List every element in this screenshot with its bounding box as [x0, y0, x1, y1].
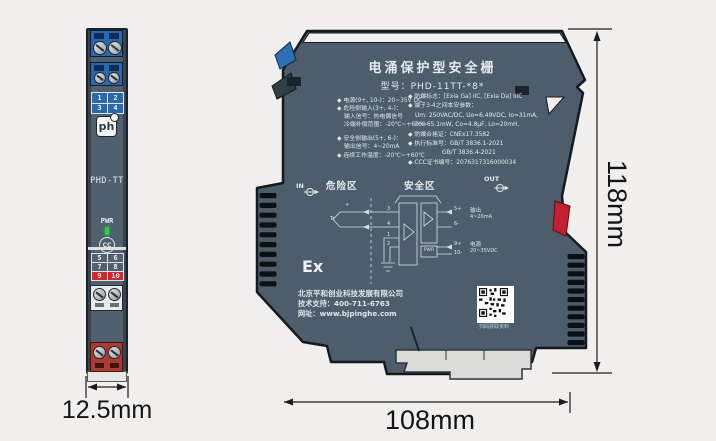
top-cap: [303, 33, 566, 43]
terminal-block-top-2: [90, 62, 123, 86]
spec-line: ◆ 防爆合格证：CNEx17.3582: [408, 131, 538, 140]
product-title: 电涌保护型安全栅: [340, 57, 525, 76]
terminal-screw: [93, 288, 106, 301]
product-dimension-drawing: { "left_module": { "model": "PHD-TT", "p…: [0, 0, 716, 441]
output-value: 4~20mA: [470, 214, 492, 220]
qr-code: [477, 286, 514, 323]
spec-line: ◆ 防爆标志：[Exia Ga] IIC, [Exia Da] IIIC: [408, 93, 538, 102]
spec-line: ◆ CCC证书编号：2076317316000034: [408, 159, 538, 168]
power-label: 电源: [470, 240, 481, 248]
thermocouple-label: Tc: [330, 216, 335, 222]
label-strip: [88, 247, 126, 250]
support-phone: 技术支持：400-711-6763: [298, 299, 390, 309]
terminal-number: 1: [92, 93, 107, 103]
terminal-block-top-1: [90, 30, 123, 57]
terminal-number: 10: [108, 272, 123, 280]
spec-line: ◆ 执行标准号：GB/T 3836.1-2021: [408, 140, 538, 149]
brand-logo: ph: [96, 116, 117, 137]
right-vent-grille: [568, 254, 585, 345]
terminal-number-grid-bottom: 5 6 7 8 9 10: [91, 253, 124, 281]
in-label: IN: [296, 182, 304, 190]
pwr-box-label: PWR: [421, 248, 437, 253]
spec-line: Po=65.1mW, Co=4.8μF, Lo=20mH,: [408, 121, 538, 130]
terminal-number: 7: [92, 263, 107, 271]
terminal-2-label: 2: [387, 241, 390, 247]
terminal-4-label: 4: [387, 221, 390, 227]
terminal-number: 5: [92, 254, 107, 262]
spec-line: GB/T 3836.4-2021: [408, 149, 538, 158]
qr-code-pattern: [479, 288, 508, 317]
side-height-dimension: 118mm: [601, 160, 632, 248]
ccc-certification-icon: CC: [99, 237, 115, 253]
terminal-10-label: 10-: [454, 250, 462, 256]
terminal-5-label: 5+: [454, 206, 461, 212]
terminal-9-label: 9+: [454, 241, 461, 247]
terminal-number: 3: [92, 104, 107, 114]
power-led: [105, 227, 109, 235]
safe-zone-label: 安全区: [404, 178, 436, 192]
terminal-screw: [108, 41, 122, 55]
terminal-screw: [108, 346, 121, 359]
brand-logo-text: ph: [99, 120, 115, 133]
terminal-block-bottom: [90, 342, 123, 372]
terminal-screw: [108, 72, 120, 84]
company-name: 北京平和创业科技发展有限公司: [298, 288, 403, 299]
power-value: 20~35VDC: [470, 248, 498, 254]
spec-line: Um: 250VAC/DC, Uo=6.49VDC, Io=31mA,: [408, 112, 538, 121]
registered-mark-icon: [110, 113, 119, 122]
product-model-line: 型号：PHD-11TT-*8*: [340, 79, 525, 92]
front-view-module: 1 2 3 4 ph PHD-TT PWR CC 5 6 7 8 9 10: [86, 28, 128, 382]
terminal-block-middle: [90, 285, 123, 311]
terminal-number: 4: [108, 104, 123, 114]
terminal-6-label: 6-: [454, 221, 459, 227]
terminal-screw: [93, 346, 106, 359]
terminal-screw: [93, 41, 107, 55]
terminal-screw: [108, 288, 121, 301]
red-wedge: [553, 201, 570, 236]
circuit-plus-label: +: [345, 202, 349, 208]
spec-list-right: ◆ 防爆标志：[Exia Ga] IIC, [Exia Da] IIIC ◆ 端…: [408, 93, 538, 168]
front-module-foot: [87, 371, 127, 382]
output-label: 输出: [470, 206, 481, 214]
terminal-number: 9: [92, 272, 107, 280]
terminal-number: 8: [108, 263, 123, 271]
hazard-zone-label: 危险区: [326, 178, 358, 192]
front-width-dimension: 12.5mm: [48, 396, 166, 425]
company-website: 网址：www.bjpinghe.com: [298, 309, 397, 319]
spec-line: ◆ 端子3-4之间本安参数：: [408, 102, 538, 111]
front-model-label: PHD-TT: [86, 176, 128, 186]
side-width-dimension: 108mm: [330, 405, 530, 436]
out-label: OUT: [484, 175, 499, 183]
terminal-3-label: 3: [387, 206, 390, 212]
left-handle-block: [287, 77, 301, 86]
terminal-number: 2: [108, 93, 123, 103]
terminal-number-grid-top: 1 2 3 4: [91, 92, 124, 114]
terminal-number: 6: [108, 254, 123, 262]
pwr-label: PWR: [86, 217, 128, 225]
qr-caption: 扫码获取资料: [468, 323, 520, 330]
terminal-screw: [94, 72, 106, 84]
ex-marking: Ex: [302, 257, 323, 276]
terminal-1-label: 1: [387, 232, 390, 238]
